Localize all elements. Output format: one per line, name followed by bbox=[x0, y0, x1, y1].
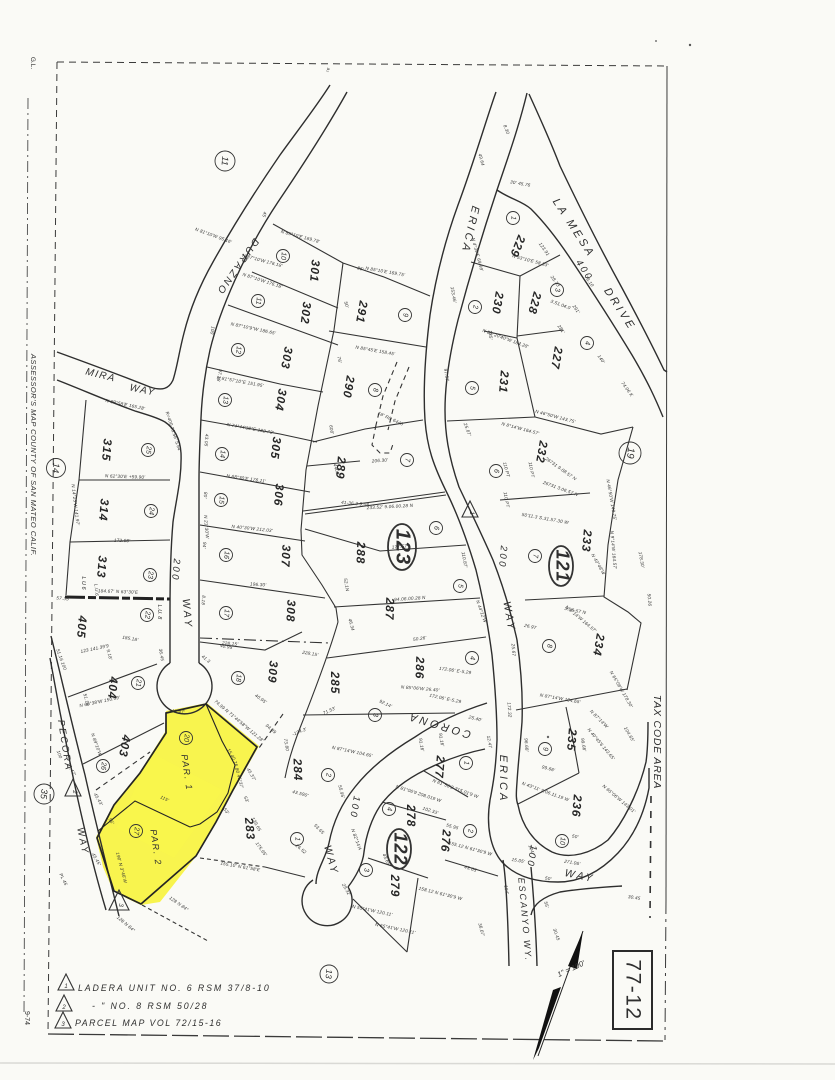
svg-text:1: 1 bbox=[509, 216, 516, 221]
svg-text:L.U.6: L.U.6 bbox=[93, 584, 99, 597]
svg-text:9: 9 bbox=[401, 313, 408, 318]
svg-text:26: 26 bbox=[99, 761, 107, 770]
svg-text:13: 13 bbox=[221, 396, 229, 404]
svg-text:L U 6: L U 6 bbox=[80, 576, 86, 590]
svg-text:135': 135' bbox=[488, 330, 494, 340]
svg-text:122: 122 bbox=[390, 832, 410, 865]
svg-text:6: 6 bbox=[492, 469, 499, 474]
svg-text:313: 313 bbox=[94, 555, 110, 579]
svg-text:1: 1 bbox=[468, 511, 474, 514]
svg-text:200: 200 bbox=[496, 544, 509, 569]
svg-text:235: 235 bbox=[564, 727, 580, 752]
svg-text:3: 3 bbox=[371, 713, 378, 718]
svg-text:4: 4 bbox=[385, 807, 392, 812]
svg-text:12: 12 bbox=[234, 346, 242, 354]
svg-text:301: 301 bbox=[307, 259, 323, 283]
svg-text:8: 8 bbox=[545, 644, 552, 649]
svg-text:21: 21 bbox=[134, 678, 142, 687]
svg-text:14: 14 bbox=[218, 450, 226, 458]
svg-text:18: 18 bbox=[234, 674, 242, 682]
svg-text:315: 315 bbox=[99, 438, 115, 462]
svg-text:5: 5 bbox=[456, 584, 463, 589]
svg-text:3: 3 bbox=[117, 903, 124, 907]
svg-text:a₂: a₂ bbox=[326, 68, 331, 73]
svg-text:L.U. 8: L.U. 8 bbox=[156, 605, 162, 621]
svg-text:24: 24 bbox=[147, 506, 155, 515]
svg-text:306: 306 bbox=[271, 483, 287, 507]
svg-text:TAX CODE AREA: TAX CODE AREA bbox=[651, 695, 663, 789]
svg-text:1: 1 bbox=[293, 837, 300, 842]
svg-text:233: 233 bbox=[579, 528, 595, 553]
svg-text:5: 5 bbox=[468, 386, 475, 391]
svg-text:6: 6 bbox=[432, 526, 439, 531]
svg-text:19: 19 bbox=[624, 447, 636, 459]
svg-text:2: 2 bbox=[61, 1005, 66, 1011]
svg-text:2: 2 bbox=[324, 772, 331, 778]
svg-text:11: 11 bbox=[254, 297, 262, 305]
svg-text:22: 22 bbox=[143, 610, 151, 619]
svg-text:236: 236 bbox=[569, 793, 585, 818]
svg-text:ERICA: ERICA bbox=[497, 755, 509, 804]
svg-text:1: 1 bbox=[462, 761, 469, 766]
svg-text:284: 284 bbox=[290, 757, 305, 781]
svg-text:3: 3 bbox=[362, 868, 369, 873]
svg-text:302: 302 bbox=[298, 301, 315, 325]
svg-text:9-74: 9-74 bbox=[23, 1011, 30, 1025]
svg-text:ASSESSOR'S MAP COUNTY OF S: ASSESSOR'S MAP COUNTY OF SAN MATEO CALIF… bbox=[29, 353, 38, 556]
svg-text:LADERA UNIT NO. 6 RSM 37/8: LADERA UNIT NO. 6 RSM 37/8-10 bbox=[78, 983, 271, 993]
svg-text:2: 2 bbox=[471, 304, 478, 310]
svg-text:11: 11 bbox=[220, 156, 231, 166]
svg-text:9: 9 bbox=[541, 747, 548, 752]
svg-text:10: 10 bbox=[558, 837, 566, 845]
svg-text:16: 16 bbox=[222, 551, 230, 559]
svg-text:PARCEL MAP VOL 72/15-16: PARCEL MAP VOL 72/15-16 bbox=[75, 1018, 222, 1028]
svg-text:10: 10 bbox=[279, 252, 287, 260]
svg-text:172.08': 172.08' bbox=[114, 538, 130, 544]
svg-text:35: 35 bbox=[38, 789, 49, 801]
svg-text:286: 286 bbox=[412, 655, 427, 679]
svg-text:314: 314 bbox=[96, 498, 112, 522]
svg-text:2: 2 bbox=[71, 789, 77, 794]
svg-text:121: 121 bbox=[552, 549, 572, 582]
svg-text:231: 231 bbox=[496, 369, 512, 394]
svg-text:80': 80' bbox=[203, 492, 209, 499]
svg-text:307: 307 bbox=[278, 544, 293, 568]
svg-text:285: 285 bbox=[328, 671, 342, 695]
svg-text:1: 1 bbox=[64, 984, 67, 990]
svg-text:25: 25 bbox=[144, 445, 152, 454]
svg-text:4: 4 bbox=[583, 341, 590, 346]
svg-text:14: 14 bbox=[51, 463, 62, 474]
svg-text:4: 4 bbox=[468, 656, 475, 661]
svg-text:278: 278 bbox=[404, 804, 418, 828]
svg-text:G.L.: G.L. bbox=[29, 57, 36, 69]
svg-text:279: 279 bbox=[388, 874, 402, 898]
svg-text:2: 2 bbox=[466, 828, 473, 834]
svg-text:288: 288 bbox=[353, 540, 368, 564]
svg-text:277: 277 bbox=[432, 754, 448, 779]
svg-text:- " NO. 8 RSM 50/2: - " NO. 8 RSM 50/28 bbox=[92, 1001, 208, 1011]
svg-text:405: 405 bbox=[74, 614, 90, 639]
svg-text:23: 23 bbox=[146, 570, 154, 579]
svg-text:3: 3 bbox=[553, 288, 560, 293]
svg-text:20: 20 bbox=[182, 733, 190, 742]
svg-text:94': 94' bbox=[202, 542, 208, 549]
svg-text:8: 8 bbox=[371, 388, 378, 393]
svg-text:305: 305 bbox=[268, 436, 285, 460]
svg-text:13: 13 bbox=[324, 969, 335, 980]
svg-text:77-12: 77-12 bbox=[622, 959, 645, 1020]
svg-text:200: 200 bbox=[169, 557, 182, 582]
svg-text:309: 309 bbox=[265, 660, 281, 684]
svg-text:15: 15 bbox=[217, 496, 225, 504]
svg-text:8.18: 8.18 bbox=[201, 595, 207, 605]
svg-text:308: 308 bbox=[283, 599, 298, 622]
